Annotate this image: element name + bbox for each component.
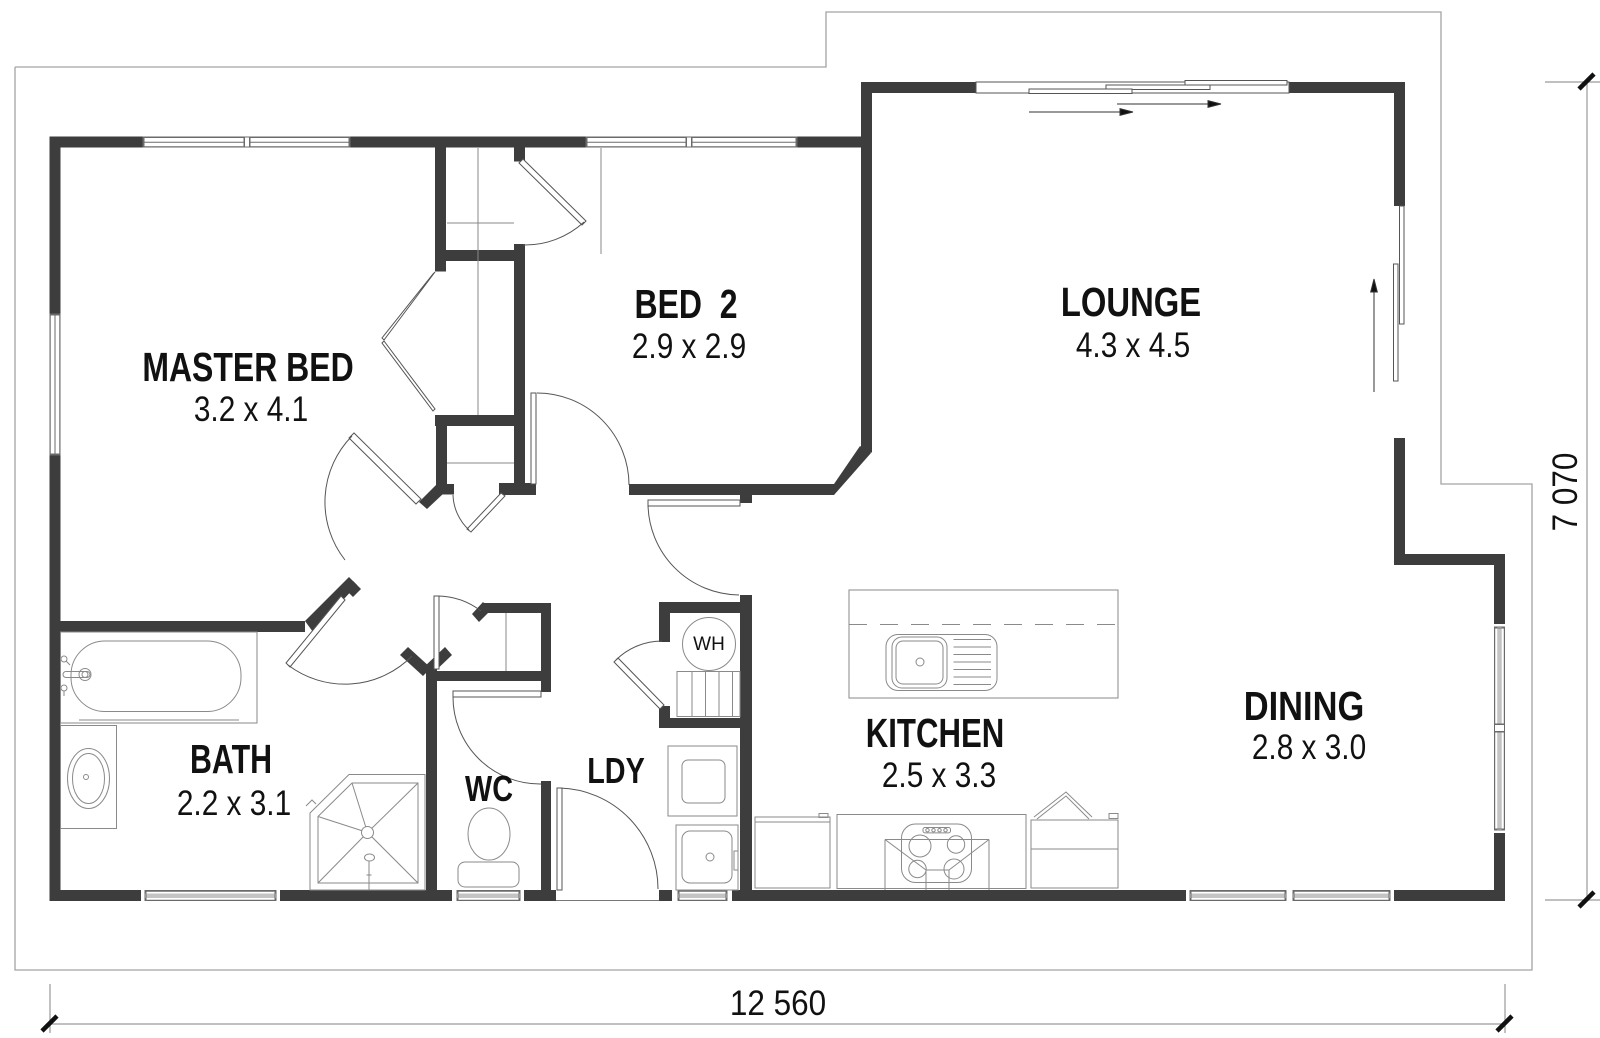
svg-text:12 560: 12 560 xyxy=(730,985,826,1024)
svg-text:BATH: BATH xyxy=(190,735,272,782)
svg-text:BED 2: BED 2 xyxy=(634,281,737,327)
svg-text:2.8 x 3.0: 2.8 x 3.0 xyxy=(1252,727,1366,767)
svg-text:WC: WC xyxy=(465,768,513,809)
svg-text:2.5 x 3.3: 2.5 x 3.3 xyxy=(882,755,996,795)
svg-text:LOUNGE: LOUNGE xyxy=(1061,278,1201,324)
svg-text:WH: WH xyxy=(693,634,725,655)
svg-text:2.9 x 2.9: 2.9 x 2.9 xyxy=(632,326,746,366)
svg-text:4.3 x 4.5: 4.3 x 4.5 xyxy=(1076,325,1190,365)
svg-text:2.2 x 3.1: 2.2 x 3.1 xyxy=(177,783,291,823)
svg-text:KITCHEN: KITCHEN xyxy=(866,710,1004,756)
svg-text:7 070: 7 070 xyxy=(1547,453,1586,532)
svg-text:LDY: LDY xyxy=(587,750,645,791)
svg-text:DINING: DINING xyxy=(1244,684,1365,729)
svg-text:3.2 x 4.1: 3.2 x 4.1 xyxy=(194,389,308,429)
svg-text:MASTER BED: MASTER BED xyxy=(142,344,353,390)
